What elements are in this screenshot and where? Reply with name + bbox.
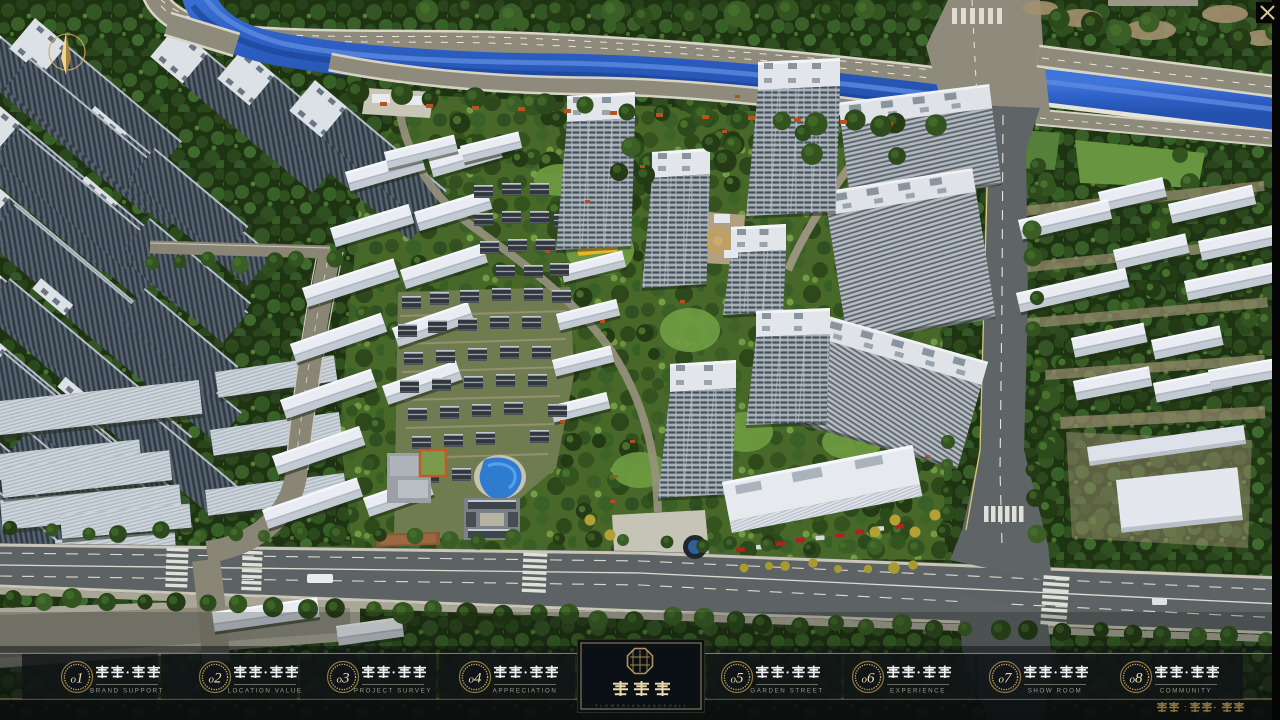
svg-text:F L O W E R L A N G U A G E: F L O W E R L A N G U A G E H A L L xyxy=(595,704,686,708)
svg-text:EXPERIENCE: EXPERIENCE xyxy=(890,688,946,695)
svg-text:o7: o7 xyxy=(999,671,1014,687)
svg-text:o1: o1 xyxy=(71,671,84,687)
svg-text:o6: o6 xyxy=(862,671,876,687)
svg-text:SHOW ROOM: SHOW ROOM xyxy=(1028,688,1083,695)
svg-text:o3: o3 xyxy=(337,671,350,687)
svg-text::: : xyxy=(1184,703,1187,713)
svg-text:LOCATION VALUE: LOCATION VALUE xyxy=(227,688,302,695)
svg-text:o8: o8 xyxy=(1130,671,1144,687)
svg-text:o2: o2 xyxy=(209,671,223,687)
svg-text:PROJECT SURVEY: PROJECT SURVEY xyxy=(354,688,432,695)
svg-text:o4: o4 xyxy=(469,671,483,687)
svg-text:o5: o5 xyxy=(731,671,745,687)
svg-text:GARDEN STREET: GARDEN STREET xyxy=(750,688,823,695)
svg-text:APPRECIATION: APPRECIATION xyxy=(493,688,558,695)
svg-text:BRAND SUPPORT: BRAND SUPPORT xyxy=(90,688,164,695)
svg-text:COMMUNITY: COMMUNITY xyxy=(1160,688,1213,695)
